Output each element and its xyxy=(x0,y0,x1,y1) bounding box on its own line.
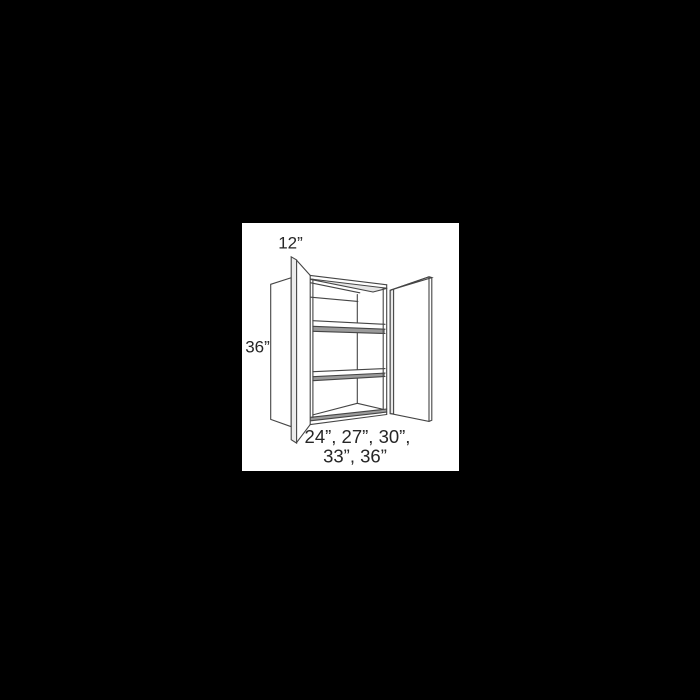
width-options-label-line2: 33”, 36” xyxy=(323,446,387,467)
height-dimension-label: 36” xyxy=(245,338,270,357)
left-door-face xyxy=(271,278,292,427)
depth-dimension-label: 12” xyxy=(278,234,303,253)
left-door-edge xyxy=(291,257,296,443)
cabinet-diagram: 12” 36” 24”, 27”, 30”, 33”, 36” xyxy=(0,0,700,700)
width-options-label-line1: 24”, 27”, 30”, xyxy=(305,426,411,447)
canvas: 12” 36” 24”, 27”, 30”, 33”, 36” xyxy=(0,0,700,700)
right-door xyxy=(390,277,432,422)
right-door-hinge-edge xyxy=(390,289,393,414)
right-door-face xyxy=(390,277,432,422)
